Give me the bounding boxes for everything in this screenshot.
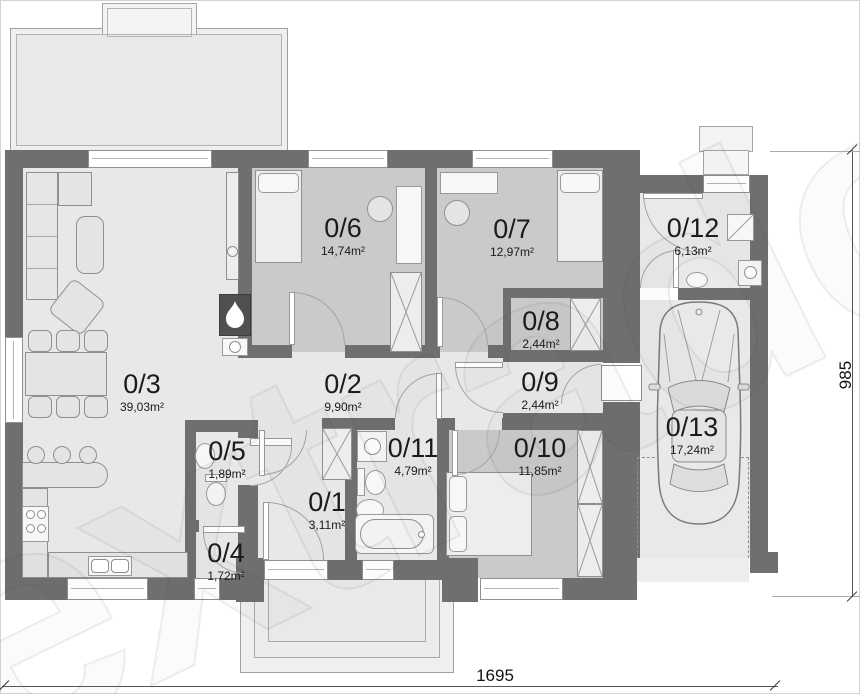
door-leaf [455, 362, 503, 368]
utility-entry-door [703, 175, 750, 193]
wall [503, 288, 605, 298]
wall [502, 418, 605, 430]
window [308, 150, 388, 168]
room-area: 3,11m² [308, 519, 346, 531]
desk-chair [367, 196, 393, 222]
room-label-0-7: 0/712,97m² [490, 216, 534, 258]
bar-stool [53, 446, 71, 464]
dimension-label-right: 985 [836, 345, 856, 405]
room-code: 0/6 [321, 215, 365, 242]
dining-chair [56, 396, 80, 418]
dining-chair [28, 330, 52, 352]
corner-sofa [58, 172, 92, 206]
door-leaf [643, 193, 703, 199]
washer-door [744, 266, 757, 279]
room-area: 2,44m² [521, 399, 559, 411]
wall [750, 552, 778, 573]
oven-dial [229, 341, 241, 353]
room-code: 0/12 [667, 215, 720, 242]
room-label-0-13: 0/1317,24m² [666, 414, 719, 456]
room-area: 9,90m² [324, 401, 362, 413]
utility-steps [699, 126, 753, 152]
room-label-0-10: 0/1011,85m² [514, 435, 567, 477]
wall [148, 578, 194, 600]
wardrobe [577, 430, 603, 504]
room-code: 0/3 [120, 371, 164, 398]
room-area: 39,03m² [120, 401, 164, 413]
toilet-bowl [365, 470, 386, 495]
room-area: 2,44m² [522, 338, 560, 350]
bar-stool [79, 446, 97, 464]
room-code: 0/2 [324, 371, 362, 398]
flame-icon [224, 300, 246, 330]
boiler-icon [727, 214, 754, 241]
tv-cabinet [226, 172, 239, 280]
dimension-line-bottom [2, 686, 778, 687]
kitchen-bar-counter [22, 462, 108, 488]
room-area: 12,97m² [490, 246, 534, 258]
wall [5, 578, 67, 600]
terrace-sliding-door [88, 150, 212, 168]
wall [640, 175, 703, 193]
floor-plan: 0/13,11m² 0/29,90m² 0/339,03m² 0/41,72m²… [0, 0, 860, 694]
garage-apron [637, 558, 749, 582]
wall [603, 558, 637, 600]
room-code: 0/9 [521, 369, 559, 396]
room-label-0-11: 0/114,79m² [388, 435, 439, 477]
room-label-0-5: 0/51,89m² [208, 438, 246, 480]
wardrobe [322, 428, 352, 480]
terrace-step-inner [107, 8, 192, 37]
bathtub-drain [418, 531, 425, 538]
wall [503, 350, 605, 362]
wardrobe [390, 272, 422, 352]
window [472, 150, 553, 168]
door-leaf [263, 502, 269, 560]
dining-chair [84, 396, 108, 418]
room-label-0-1: 0/13,11m² [308, 489, 346, 531]
door-leaf [259, 430, 265, 476]
dining-chair [84, 330, 108, 352]
pillow [560, 173, 600, 193]
pillow [258, 173, 299, 193]
wall [5, 150, 23, 337]
room-area: 14,74m² [321, 245, 365, 257]
sink-bowl [111, 559, 129, 573]
wall [388, 150, 472, 168]
room-label-0-3: 0/339,03m² [120, 371, 164, 413]
garage-door-dashed-line [637, 457, 638, 558]
room-label-0-2: 0/29,90m² [324, 371, 362, 413]
washbasin-icon [686, 272, 708, 288]
fireplace [219, 294, 251, 336]
terrace-inner [16, 34, 282, 146]
room-area: 1,72m² [207, 570, 245, 582]
burner-icon [26, 510, 35, 519]
window [5, 337, 23, 423]
room-code: 0/11 [388, 435, 439, 462]
burner-icon [37, 524, 46, 533]
wall [185, 520, 199, 532]
wall [553, 150, 603, 168]
wall [425, 168, 437, 358]
burner-icon [37, 510, 46, 519]
entry-porch-top-step [268, 574, 426, 642]
utility-step-2 [703, 150, 749, 175]
window [67, 578, 148, 600]
wardrobe [577, 504, 603, 577]
room-label-0-6: 0/614,74m² [321, 215, 365, 257]
wall [488, 345, 503, 358]
dimension-label-bottom: 1695 [460, 666, 530, 686]
door-leaf [436, 373, 442, 419]
room-area: 4,79m² [388, 465, 439, 477]
desk-chair [444, 200, 470, 226]
pillow [449, 516, 467, 552]
tv-icon [227, 246, 238, 257]
window [480, 578, 563, 600]
room-area: 1,89m² [208, 468, 246, 480]
wall [603, 402, 640, 558]
toilet-bowl [206, 482, 226, 506]
extension-line [770, 151, 860, 152]
pillow [449, 476, 467, 512]
wall [328, 560, 362, 580]
wardrobe [570, 298, 601, 351]
door-leaf [289, 292, 295, 345]
bar-stool [27, 446, 45, 464]
wall [449, 418, 455, 430]
bathtub-inner [360, 519, 424, 549]
room-label-0-9: 0/92,44m² [521, 369, 559, 411]
dining-chair [28, 396, 52, 418]
corner-sofa [26, 172, 58, 300]
room-code: 0/10 [514, 435, 567, 462]
room-area: 17,24m² [666, 444, 719, 456]
room-area: 6,13m² [667, 245, 720, 257]
room-label-0-4: 0/41,72m² [207, 540, 245, 582]
wall [5, 423, 23, 600]
main-entrance-door [264, 560, 328, 580]
coffee-table [76, 216, 104, 274]
door-leaf [203, 526, 245, 533]
room-code: 0/8 [522, 308, 560, 335]
dining-table [25, 352, 107, 396]
room-code: 0/7 [490, 216, 534, 243]
extension-line [772, 596, 860, 597]
room-label-0-12: 0/126,13m² [667, 215, 720, 257]
burner-icon [26, 524, 35, 533]
washer-door [364, 438, 381, 455]
dining-chair [56, 330, 80, 352]
room-code: 0/1 [308, 489, 346, 516]
room-area: 11,85m² [514, 465, 567, 477]
toilet-icon [357, 468, 365, 496]
sink-bowl [91, 559, 109, 573]
wall [603, 150, 640, 363]
wall [503, 296, 511, 354]
window [362, 560, 394, 580]
room-label-0-8: 0/82,44m² [522, 308, 560, 350]
wall [394, 560, 442, 580]
garage-side-door [601, 365, 642, 401]
room-code: 0/5 [208, 438, 246, 465]
desk [440, 172, 498, 194]
desk [396, 186, 422, 264]
door-leaf [437, 297, 443, 347]
room-code: 0/4 [207, 540, 245, 567]
room-code: 0/13 [666, 414, 719, 441]
wall [212, 150, 308, 168]
door-leaf [452, 430, 458, 476]
wall [563, 578, 605, 600]
